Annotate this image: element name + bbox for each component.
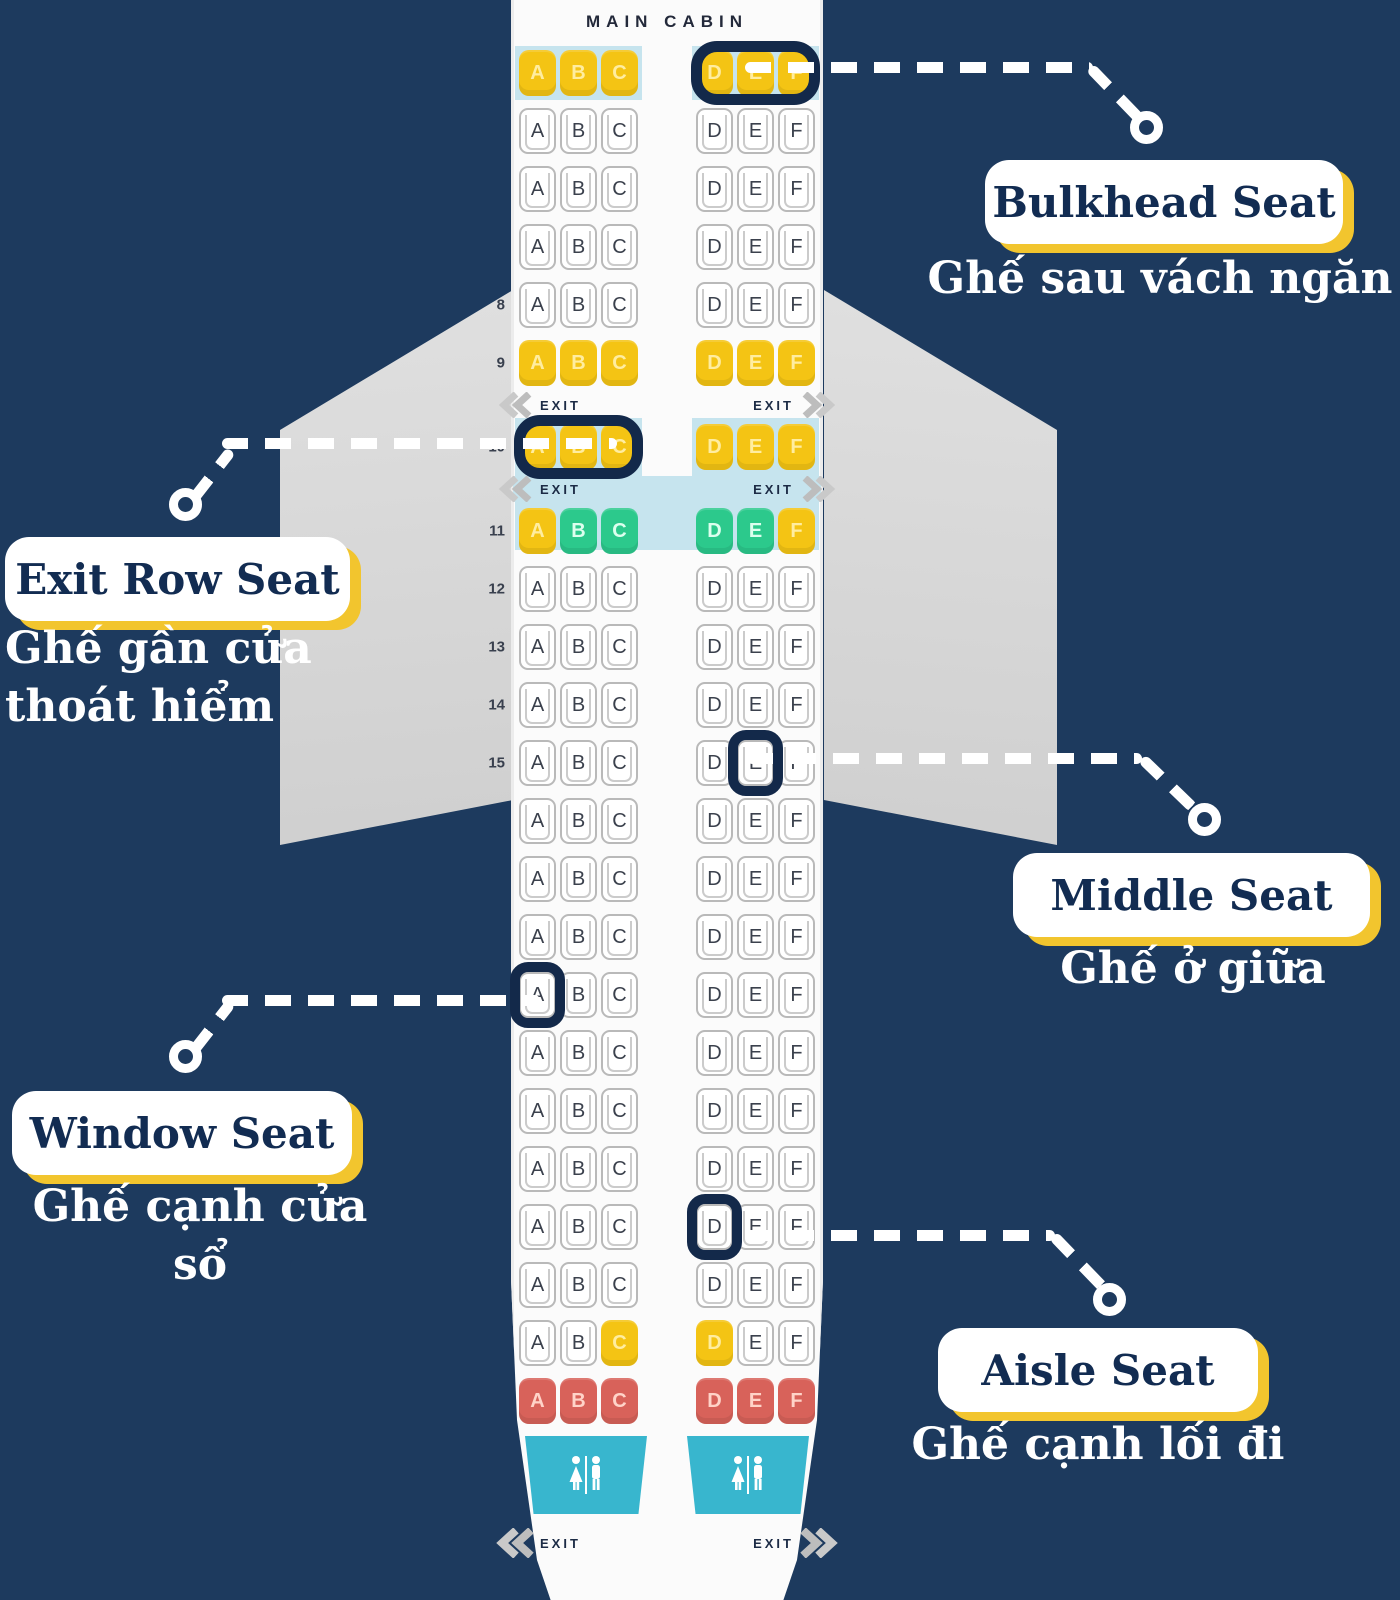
seat: C: [601, 340, 638, 386]
seat: E: [737, 798, 774, 844]
callout-bulkhead-title: Bulkhead Seat: [992, 178, 1335, 227]
seat-group-right: DEF: [696, 1262, 815, 1308]
callout-middle-box: Middle Seat: [1013, 853, 1370, 937]
seat: D: [696, 50, 733, 96]
seat: F: [778, 1378, 815, 1424]
seat: B: [560, 972, 597, 1018]
seat: E: [737, 166, 774, 212]
seat-group-left: ABC: [519, 798, 638, 844]
seat-group-left: ABC: [519, 1320, 638, 1366]
seat: E: [737, 282, 774, 328]
seat: A: [519, 108, 556, 154]
seat: F: [778, 1088, 815, 1134]
dashed-line: [745, 62, 1093, 73]
callout-middle-subtitle: Ghế ở giữa: [1008, 940, 1378, 998]
lavatory-row: [511, 1430, 823, 1522]
seat: C: [601, 624, 638, 670]
seat: A: [519, 682, 556, 728]
seat: D: [696, 1088, 733, 1134]
seat: D: [696, 282, 733, 328]
exit-label: EXIT: [540, 482, 581, 497]
seat: C: [601, 1088, 638, 1134]
exit-right: EXIT: [753, 1530, 837, 1556]
seat: C: [601, 972, 638, 1018]
seat: E: [737, 682, 774, 728]
row-number: 15: [481, 755, 505, 772]
connector-node: [1188, 803, 1221, 836]
exit-left: EXIT: [497, 392, 581, 418]
seat: B: [560, 1204, 597, 1250]
seat: D: [696, 1262, 733, 1308]
seat-group-left: ABC: [519, 340, 638, 386]
seat: D: [696, 1204, 733, 1250]
seat: E: [737, 1262, 774, 1308]
seat: B: [560, 1146, 597, 1192]
seat-group-right: DEF: [696, 424, 815, 470]
seat-rows: MAIN CABIN ABCDEFABCDEFABCDEFABCDEF8ABCD…: [511, 0, 823, 1574]
seat-group-left: ABC: [519, 1204, 638, 1250]
seat: D: [696, 798, 733, 844]
seat-group-left: ABC: [519, 166, 638, 212]
seat: D: [696, 972, 733, 1018]
seat: C: [601, 566, 638, 612]
seat: F: [778, 1320, 815, 1366]
seat-group-left: ABC: [519, 1262, 638, 1308]
seat: F: [778, 424, 815, 470]
seat: F: [778, 340, 815, 386]
seat-row: ABCDEF: [511, 1314, 823, 1372]
callout-exit-row-box: Exit Row Seat: [5, 537, 350, 621]
seat: B: [560, 1030, 597, 1076]
exit-label: EXIT: [540, 1536, 581, 1551]
seat-group-right: DEF: [696, 340, 815, 386]
seat: B: [560, 1378, 597, 1424]
seat-group-right: DEF: [696, 224, 815, 270]
seat: D: [696, 340, 733, 386]
seat: B: [560, 508, 597, 554]
seat-row: 9ABCDEF: [511, 334, 823, 392]
seat-group-right: DEF: [696, 624, 815, 670]
seat: D: [696, 624, 733, 670]
seat-row: 14ABCDEF: [511, 676, 823, 734]
right-wing-graphic: [820, 285, 1060, 850]
seat: D: [696, 856, 733, 902]
seat-group-left: ABC: [519, 682, 638, 728]
chevron-left-icon: [497, 476, 535, 502]
seat: F: [778, 1146, 815, 1192]
seat-row: ABCDEF: [511, 1082, 823, 1140]
cabin-title: MAIN CABIN: [511, 0, 823, 44]
seat: F: [778, 50, 815, 96]
seat: C: [601, 798, 638, 844]
callout-exit-row-title: Exit Row Seat: [15, 555, 339, 604]
seat: E: [737, 566, 774, 612]
seat: C: [601, 1320, 638, 1366]
seat-row: ABCDEF: [511, 1024, 823, 1082]
seat-row: 8ABCDEF: [511, 276, 823, 334]
seat: F: [778, 624, 815, 670]
callout-aisle-title: Aisle Seat: [981, 1346, 1214, 1395]
seat: A: [519, 914, 556, 960]
seat-group-right: DEF: [696, 566, 815, 612]
seat-group-left: ABC: [519, 624, 638, 670]
callout-aisle-subtitle: Ghế cạnh lối đi: [908, 1416, 1288, 1474]
seat-group-right: DEF: [696, 108, 815, 154]
seat: E: [737, 224, 774, 270]
seat-group-left: ABC: [519, 1146, 638, 1192]
seat: F: [778, 972, 815, 1018]
seat: A: [519, 340, 556, 386]
seat: B: [560, 108, 597, 154]
chevron-right-icon: [799, 392, 837, 418]
seat: C: [601, 856, 638, 902]
connector-node: [1093, 1283, 1126, 1316]
seat-group-right: DEF: [696, 1088, 815, 1134]
seat-group-left: ABC: [519, 1030, 638, 1076]
connector-node: [169, 488, 202, 521]
exit-label: EXIT: [753, 482, 794, 497]
callout-exit-row-subtitle: Ghế gần cửa thoát hiểm: [5, 620, 317, 736]
seat: B: [560, 224, 597, 270]
dashed-line: [222, 995, 540, 1006]
seat: B: [560, 1320, 597, 1366]
seat: D: [696, 108, 733, 154]
seat: C: [601, 166, 638, 212]
seat: D: [696, 1378, 733, 1424]
seat: C: [601, 1030, 638, 1076]
exit-right: EXIT: [753, 476, 837, 502]
callout-bulkhead-subtitle: Ghế sau vách ngăn: [920, 250, 1400, 308]
seat-group-right: DEF: [696, 682, 815, 728]
exit-band: EXITEXIT: [511, 1522, 823, 1574]
connector-node: [169, 1040, 202, 1073]
exit-left: EXIT: [497, 1530, 581, 1556]
seat: F: [778, 682, 815, 728]
seat: E: [737, 1204, 774, 1250]
row-number: 13: [481, 639, 505, 656]
seat: C: [601, 108, 638, 154]
seat: E: [737, 624, 774, 670]
seat: A: [519, 1320, 556, 1366]
lavatory-block-right: [687, 1436, 809, 1514]
exit-band: EXITEXIT: [511, 476, 823, 502]
exit-left: EXIT: [497, 476, 581, 502]
seat: F: [778, 1262, 815, 1308]
seat-row: ABCDEF: [511, 850, 823, 908]
seat-group-right: DEF: [696, 914, 815, 960]
lavatory-block-left: [525, 1436, 647, 1514]
connector-node: [1130, 111, 1163, 144]
seat: A: [519, 1262, 556, 1308]
row-number: 14: [481, 697, 505, 714]
seat: D: [696, 1146, 733, 1192]
seat-group-right: DEF: [696, 508, 815, 554]
seat-group-left: ABC: [519, 282, 638, 328]
seat: D: [696, 566, 733, 612]
exit-label: EXIT: [540, 398, 581, 413]
seat: E: [737, 1146, 774, 1192]
seat: C: [601, 508, 638, 554]
seat: A: [519, 224, 556, 270]
seat: F: [778, 1030, 815, 1076]
seat: A: [519, 1378, 556, 1424]
seat: C: [601, 1262, 638, 1308]
seat-row: ABCDEF: [511, 160, 823, 218]
seat: F: [778, 566, 815, 612]
exit-label: EXIT: [753, 1536, 794, 1551]
seat-group-left: ABC: [519, 224, 638, 270]
seat-group-right: DEF: [696, 282, 815, 328]
seat: B: [560, 798, 597, 844]
seat: E: [737, 508, 774, 554]
exit-right: EXIT: [753, 392, 837, 418]
seat: C: [601, 1378, 638, 1424]
seat: C: [601, 1204, 638, 1250]
callout-window-box: Window Seat: [12, 1091, 352, 1175]
exit-label: EXIT: [753, 398, 794, 413]
seat: B: [560, 166, 597, 212]
seat: D: [696, 740, 733, 786]
chevron-left-icon: [494, 1528, 538, 1558]
seat: A: [519, 1146, 556, 1192]
seat: A: [519, 1030, 556, 1076]
seat: E: [737, 1030, 774, 1076]
seat: D: [696, 424, 733, 470]
dashed-line: [747, 753, 1142, 764]
seat-group-left: ABC: [519, 1088, 638, 1134]
callout-window-subtitle: Ghế cạnh cửa sổ: [0, 1178, 400, 1294]
seat: E: [737, 1088, 774, 1134]
seat: D: [696, 166, 733, 212]
seat-group-right: DEF: [696, 50, 815, 96]
seat: F: [778, 1204, 815, 1250]
seat-row: 12ABCDEF: [511, 560, 823, 618]
seat-group-left: ABC: [519, 566, 638, 612]
seat: A: [519, 624, 556, 670]
seat: B: [560, 1262, 597, 1308]
restroom-icon: [725, 1454, 771, 1496]
seat-group-right: DEF: [696, 856, 815, 902]
seat: F: [778, 224, 815, 270]
seat: C: [601, 1146, 638, 1192]
seat-row: ABCDEF: [511, 1140, 823, 1198]
seat-row: ABCDEF: [511, 1372, 823, 1430]
seat: A: [519, 282, 556, 328]
seat: E: [737, 1320, 774, 1366]
seat: D: [696, 508, 733, 554]
seat: B: [560, 740, 597, 786]
seat: A: [519, 508, 556, 554]
seat-group-right: DEF: [696, 1146, 815, 1192]
seat-group-left: ABC: [519, 1378, 638, 1424]
seat-group-right: DEF: [696, 166, 815, 212]
seat: A: [519, 1204, 556, 1250]
seat: F: [778, 282, 815, 328]
seat: C: [601, 914, 638, 960]
seat-row: ABCDEF: [511, 908, 823, 966]
seat: C: [601, 740, 638, 786]
seat-row: ABCDEF: [511, 792, 823, 850]
seat: E: [737, 340, 774, 386]
row-number: 12: [481, 581, 505, 598]
exit-band: EXITEXIT: [511, 392, 823, 418]
row-number: 8: [481, 297, 505, 314]
seat-group-right: DEF: [696, 1204, 815, 1250]
seat-row: ABCDEF: [511, 102, 823, 160]
seat: F: [778, 856, 815, 902]
callout-window-title: Window Seat: [30, 1109, 335, 1158]
chevron-left-icon: [497, 392, 535, 418]
seat: F: [778, 508, 815, 554]
seat-row: ABCDEF: [511, 218, 823, 276]
seat: F: [778, 108, 815, 154]
seat: B: [560, 682, 597, 728]
seat: B: [560, 856, 597, 902]
seat: D: [696, 682, 733, 728]
seat-row: ABCDEF: [511, 44, 823, 102]
seat: F: [778, 798, 815, 844]
seat-group-left: ABC: [519, 914, 638, 960]
seat: E: [737, 108, 774, 154]
seat-row: 11ABCDEF: [511, 502, 823, 560]
seat-group-right: DEF: [696, 972, 815, 1018]
seat: D: [696, 1030, 733, 1076]
seat-group-left: ABC: [519, 856, 638, 902]
seat-row: ABCDEF: [511, 1256, 823, 1314]
seat: A: [519, 566, 556, 612]
restroom-icon: [563, 1454, 609, 1496]
seat-row: ABCDEF: [511, 1198, 823, 1256]
seat-group-left: ABC: [519, 50, 638, 96]
dashed-line: [745, 1230, 1055, 1241]
seat: F: [778, 914, 815, 960]
seat: D: [696, 914, 733, 960]
seat: C: [601, 682, 638, 728]
seat-group-right: DEF: [696, 1378, 815, 1424]
seat: F: [778, 166, 815, 212]
seat: B: [560, 340, 597, 386]
chevron-right-icon: [796, 1528, 840, 1558]
seat: B: [560, 50, 597, 96]
seat-row: 13ABCDEF: [511, 618, 823, 676]
seat-group-right: DEF: [696, 1030, 815, 1076]
seat: E: [737, 914, 774, 960]
seat: A: [519, 740, 556, 786]
seatmap-infographic: MAIN CABIN ABCDEFABCDEFABCDEFABCDEF8ABCD…: [0, 0, 1400, 1600]
seat: C: [601, 224, 638, 270]
callout-aisle-box: Aisle Seat: [938, 1328, 1258, 1412]
seat: A: [519, 856, 556, 902]
seat: A: [519, 798, 556, 844]
seat: E: [737, 424, 774, 470]
seat: A: [519, 166, 556, 212]
row-number: 9: [481, 355, 505, 372]
seat: B: [560, 282, 597, 328]
seat: E: [737, 856, 774, 902]
seat: B: [560, 566, 597, 612]
dashed-line: [1138, 755, 1197, 813]
seat-row: ABCDEF: [511, 966, 823, 1024]
seat: C: [601, 282, 638, 328]
seat: D: [696, 224, 733, 270]
row-number: 11: [481, 523, 505, 540]
callout-bulkhead-box: Bulkhead Seat: [985, 160, 1343, 244]
seat: E: [737, 50, 774, 96]
seat: E: [737, 1378, 774, 1424]
seat: B: [560, 1088, 597, 1134]
seat: A: [519, 1088, 556, 1134]
callout-middle-title: Middle Seat: [1050, 871, 1332, 920]
seat-group-left: ABC: [519, 508, 638, 554]
seat: B: [560, 624, 597, 670]
seat: E: [737, 972, 774, 1018]
seat: C: [601, 50, 638, 96]
chevron-right-icon: [799, 476, 837, 502]
dashed-line: [222, 438, 617, 449]
seat-group-right: DEF: [696, 1320, 815, 1366]
seat: D: [696, 1320, 733, 1366]
seat: A: [519, 50, 556, 96]
seat-group-left: ABC: [519, 740, 638, 786]
seat: B: [560, 914, 597, 960]
seat-group-left: ABC: [519, 108, 638, 154]
seat-group-right: DEF: [696, 798, 815, 844]
